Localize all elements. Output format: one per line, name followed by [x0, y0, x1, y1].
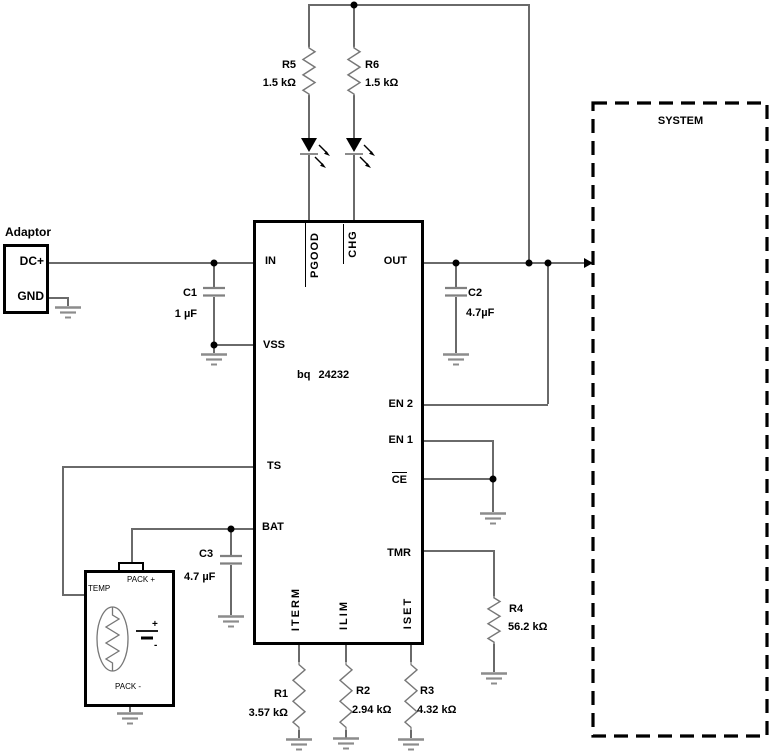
wire [423, 478, 492, 480]
battery-pack-plus-label: PACK + [127, 575, 155, 584]
wire [410, 730, 412, 738]
r2-ref: R2 [356, 685, 370, 698]
wire [423, 262, 586, 264]
r3-ref: R3 [420, 685, 434, 698]
wire [547, 262, 549, 404]
ground-icon [285, 738, 313, 753]
wire [455, 297, 457, 353]
ic-pin-pgood: PGOOD [305, 223, 321, 287]
r2-value: 2.94 kΩ [352, 704, 391, 717]
r1-value: 3.57 kΩ [234, 707, 288, 720]
c2-ref: C2 [468, 287, 482, 300]
wire [230, 565, 232, 615]
ic-pin-tmr: TMR [375, 547, 411, 560]
ground-icon [479, 512, 507, 527]
wire [62, 466, 254, 468]
ic-pin-ts: TS [267, 460, 281, 473]
schematic-canvas: Adaptor DC+ GND IN VSS TS BAT OUT EN 2 E… [0, 0, 771, 754]
wire [423, 550, 493, 552]
junction-dot [526, 260, 533, 267]
r6-ref: R6 [365, 59, 379, 72]
ic-pin-ce: CE [375, 472, 407, 487]
wire [493, 644, 495, 672]
ic-pin-iterm: ITERM [290, 580, 302, 638]
ground-icon [116, 712, 144, 727]
resistor-r5 [301, 46, 317, 96]
capacitor-c1 [203, 286, 225, 298]
ground-icon [480, 672, 508, 687]
c2-value: 4.7µF [466, 307, 494, 320]
resistor-r1 [291, 662, 307, 730]
ground-icon [332, 737, 360, 752]
system-box [591, 101, 769, 738]
ic-pin-ce-label: CE [392, 472, 407, 487]
battery-pack-minus-label: PACK - [115, 682, 141, 691]
c3-value: 4.7 µF [184, 571, 215, 584]
r1-ref: R1 [262, 688, 288, 701]
r5-ref: R5 [246, 59, 296, 72]
ground-icon [397, 738, 425, 753]
ic-pin-en1: EN 1 [379, 434, 413, 447]
wire [528, 4, 530, 262]
junction-dot [545, 260, 552, 267]
junction-dot [211, 342, 218, 349]
c1-value: 1 µF [160, 308, 197, 321]
resistor-r2 [338, 662, 354, 730]
r5-value: 1.5 kΩ [236, 77, 296, 90]
wire [353, 4, 355, 47]
ic-pin-en2: EN 2 [379, 398, 413, 411]
battery-terminal-bump [118, 562, 144, 572]
led-chg-icon [345, 136, 381, 178]
ground-icon [217, 615, 245, 630]
capacitor-c2 [445, 286, 467, 298]
junction-dot [490, 476, 497, 483]
resistor-r6 [346, 46, 362, 96]
r4-ref: R4 [509, 603, 523, 616]
wire [493, 550, 495, 596]
wire [345, 645, 347, 662]
ground-icon [54, 306, 82, 321]
wire [47, 297, 69, 299]
thermistor-icon [96, 606, 129, 672]
wire [308, 4, 529, 6]
junction-dot [228, 526, 235, 533]
wire [423, 440, 492, 442]
led-pgood-icon [300, 136, 336, 178]
system-label: SYSTEM [593, 115, 768, 128]
battery-plus-sign: + [152, 620, 158, 629]
out-arrow-icon [584, 258, 593, 268]
wire [492, 478, 494, 512]
battery-temp-label: TEMP [88, 584, 110, 593]
ic-pin-ilim: ILIM [338, 593, 350, 637]
c1-ref: C1 [173, 287, 197, 300]
wire [213, 297, 215, 345]
c3-ref: C3 [199, 548, 213, 561]
wire [298, 730, 300, 738]
ic-pin-bat: BAT [262, 521, 284, 534]
wire [410, 645, 412, 662]
r6-value: 1.5 kΩ [365, 77, 398, 90]
ic-pin-in: IN [265, 255, 276, 268]
r3-value: 4.32 kΩ [417, 704, 456, 717]
junction-dot [351, 2, 358, 9]
wire [308, 4, 310, 47]
adaptor-pin-gnd: GND [8, 290, 44, 303]
junction-dot [211, 260, 218, 267]
wire [353, 95, 355, 138]
resistor-r3 [403, 662, 419, 730]
wire [62, 466, 64, 595]
ic-pin-vss: VSS [263, 339, 285, 352]
wire [308, 95, 310, 138]
wire [131, 528, 133, 562]
wire [492, 440, 494, 478]
ic-part-number: bq 24232 [297, 369, 349, 382]
r4-value: 56.2 kΩ [508, 621, 547, 634]
ground-icon [442, 353, 470, 368]
wire [423, 404, 548, 406]
wire [47, 262, 254, 264]
junction-dot [453, 260, 460, 267]
wire [298, 645, 300, 662]
ic-body [253, 220, 424, 645]
wire [213, 344, 254, 346]
wire [67, 297, 69, 306]
ic-pin-out: OUT [371, 255, 407, 268]
ground-icon [200, 353, 228, 368]
adaptor-title: Adaptor [5, 226, 51, 239]
wire [131, 528, 254, 530]
capacitor-c3 [220, 554, 242, 566]
ic-pin-iset: ISET [402, 589, 414, 637]
battery-minus-sign: - [154, 641, 157, 650]
ic-pin-chg: CHG [343, 224, 359, 264]
resistor-r4 [486, 596, 502, 644]
adaptor-pin-dcplus: DC+ [8, 255, 44, 268]
